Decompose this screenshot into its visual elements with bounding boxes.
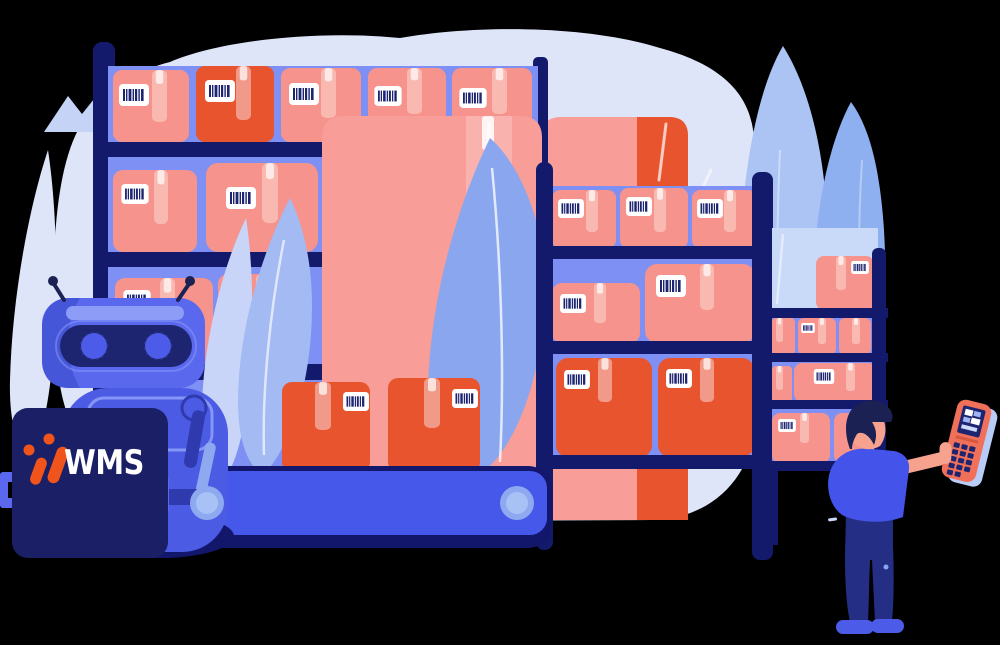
box-tape (654, 188, 666, 232)
box-tape (492, 68, 507, 114)
box-tape (154, 170, 168, 224)
barcode-label (656, 275, 686, 297)
wms-sign: WMS (0, 408, 169, 558)
box-tape (836, 256, 846, 290)
logo-dot (24, 445, 35, 456)
box-tape (776, 318, 783, 342)
box-tape (152, 70, 167, 122)
box-tape (700, 264, 714, 310)
warehouse-illustration: WMS (0, 0, 1000, 645)
box-tape (852, 318, 860, 344)
box-tape (724, 190, 736, 232)
box-tape (846, 363, 855, 391)
barcode-label (452, 389, 478, 408)
barcode-label (119, 84, 149, 106)
barcode-label (697, 199, 723, 218)
box-tape (424, 378, 440, 428)
robot-head-highlight (66, 306, 184, 320)
shelf-leg (768, 471, 778, 545)
barcode-label (814, 369, 834, 384)
box-tape (236, 66, 251, 120)
robot-eye-right (145, 333, 171, 359)
box-tape (800, 413, 809, 443)
barcode-label (226, 187, 256, 209)
worker-shoe-right (871, 619, 904, 633)
shelf-far-right-row-3 (772, 363, 876, 402)
shelf-right-row-1 (552, 188, 756, 248)
shelf-board (538, 341, 776, 354)
barcode-label (778, 419, 796, 432)
worker-thumb (939, 442, 952, 464)
barcode-label (564, 370, 590, 389)
box-tape (700, 358, 714, 402)
roller-left-hub (196, 492, 218, 514)
box-tape (594, 283, 606, 323)
box (196, 66, 274, 142)
barcode-label (560, 294, 586, 313)
box-tape (818, 318, 826, 344)
robot-eye-left (81, 333, 107, 359)
barcode-label (121, 184, 148, 204)
worker-shirt (828, 449, 909, 522)
barcode-label (343, 392, 369, 411)
barcode-label (801, 323, 815, 333)
box-tape (262, 163, 278, 223)
box-tape (407, 68, 422, 114)
box-tape (776, 366, 783, 390)
logo-dot (44, 434, 55, 445)
box-tape (315, 382, 331, 430)
shelf-board (766, 308, 888, 318)
barcode-label (666, 369, 692, 388)
shelf-far-right-row-2 (772, 318, 871, 355)
antenna-ball-left (48, 276, 58, 286)
wms-logo-text: WMS (64, 443, 144, 483)
sparkle-dot (884, 565, 889, 570)
barcode-label (289, 83, 319, 105)
barcode-label (851, 261, 869, 274)
antenna-ball-right (185, 276, 195, 286)
barcode-label (205, 80, 235, 102)
barcode-label (558, 199, 584, 218)
box-tape (586, 190, 598, 232)
illustration-canvas: WMS (0, 0, 1000, 645)
box-tape (321, 68, 336, 118)
shelf-board (766, 353, 888, 362)
barcode-label (374, 86, 401, 106)
barcode-label (626, 197, 652, 216)
box (552, 190, 616, 248)
sign-clamp-left (0, 472, 8, 508)
box (772, 318, 795, 355)
shelf-board (538, 246, 776, 259)
shelf-board (538, 455, 776, 469)
worker-shoe-left (836, 620, 874, 634)
box (794, 363, 876, 402)
barcode-label (459, 88, 486, 108)
roller-right-hub (506, 492, 528, 514)
box-tape (598, 358, 612, 402)
